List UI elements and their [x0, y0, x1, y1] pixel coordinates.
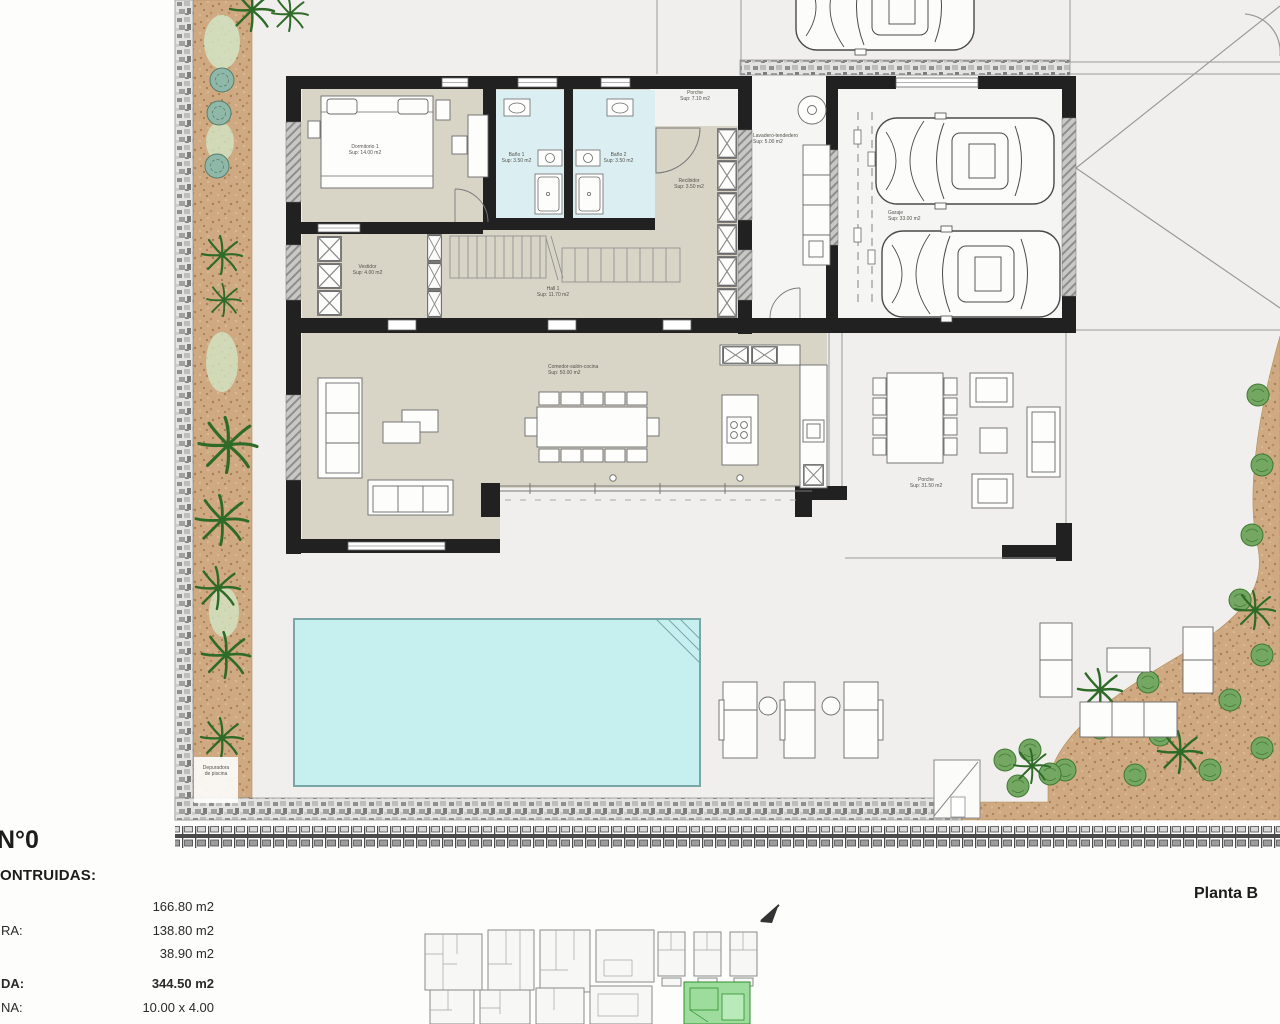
- north-arrow-icon: [760, 904, 779, 923]
- summary-row: NA:10.00 x 4.00: [0, 1000, 216, 1016]
- summary-row: 166.80 m2: [0, 899, 216, 915]
- boundary-wall-bottom: [175, 798, 962, 820]
- dining-set: [525, 392, 659, 462]
- garden-gate: [934, 760, 980, 818]
- boundary-wall-top: [740, 60, 1070, 75]
- car-1: [876, 113, 1054, 209]
- planta-title: Planta B: [1194, 885, 1258, 903]
- plan-number: N°0: [0, 826, 39, 855]
- key-plan-thumbnail: [425, 930, 757, 1024]
- summary-row: RA:138.80 m2: [0, 923, 216, 939]
- street-fence-band: [175, 826, 1280, 848]
- floor-plan-drawing: [0, 0, 1280, 1024]
- car-outside: [796, 0, 974, 55]
- car-2: [882, 226, 1060, 322]
- floor-plan-page: Dormitorio 1Sup: 14.00 m2 Baño 1Sup: 3.5…: [0, 0, 1280, 1024]
- summary-row-total: DA:344.50 m2: [0, 976, 216, 992]
- summary-row: 38.90 m2: [0, 946, 216, 962]
- pool: [294, 619, 700, 786]
- sunbeds: [719, 682, 883, 758]
- boundary-wall-left: [175, 0, 193, 820]
- pool-equipment-box: [194, 757, 238, 803]
- summary-heading: ONTRUIDAS:: [0, 867, 96, 884]
- key-plan-highlighted-unit: [684, 982, 750, 1024]
